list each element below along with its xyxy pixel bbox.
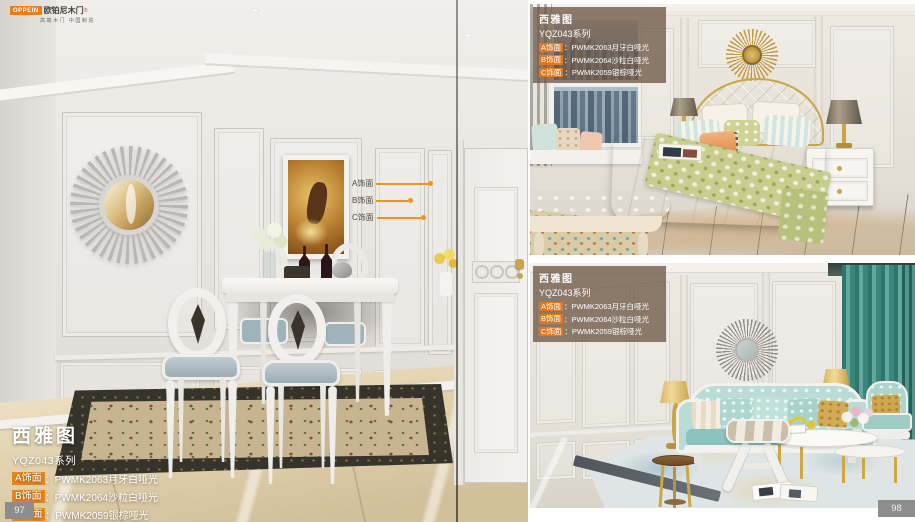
product-series: YQZ043系列 bbox=[539, 286, 660, 299]
callout-leader-line bbox=[376, 183, 428, 185]
chair-leg bbox=[220, 378, 226, 462]
vase bbox=[440, 272, 452, 296]
finish-line-b: B饰面：PWMK2064沙粒白哑光 bbox=[539, 314, 660, 325]
product-title: 西雅图 bbox=[539, 11, 660, 26]
gold-sunburst-decor bbox=[726, 29, 778, 81]
finish-tag-a: A饰面 bbox=[539, 302, 563, 312]
finish-value-b: PWMK2064沙粒白哑光 bbox=[55, 489, 158, 504]
finish-sep: ： bbox=[564, 55, 572, 66]
magazine-cover bbox=[759, 487, 774, 496]
product-title: 西雅图 bbox=[12, 421, 158, 448]
spotlight bbox=[463, 33, 473, 38]
drawer-knob bbox=[837, 189, 842, 194]
chair-leg bbox=[178, 378, 184, 462]
callout-b: B饰面 bbox=[352, 195, 413, 206]
callout-leader-line bbox=[376, 200, 408, 202]
callout-dot bbox=[408, 198, 413, 203]
living-room-info-overlay: 西雅图 YQZ043系列 A饰面：PWMK2063月牙白哑光 B饰面：PWMK2… bbox=[533, 266, 666, 342]
flower-bouquet bbox=[838, 403, 874, 431]
finish-line-a: A饰面：PWMK2063月牙白哑光 bbox=[539, 301, 660, 312]
spotlight bbox=[250, 8, 260, 13]
door-handle bbox=[515, 259, 524, 269]
nesting-table-top bbox=[834, 445, 906, 458]
bench-leg bbox=[534, 232, 544, 255]
door-keyhole bbox=[517, 273, 523, 279]
table-leg bbox=[800, 447, 803, 479]
finish-tag-c: C饰面 bbox=[539, 327, 563, 337]
partition-line bbox=[456, 0, 458, 522]
bench-leg bbox=[638, 232, 648, 255]
finish-sep: ： bbox=[45, 507, 55, 522]
door-circle-band bbox=[472, 261, 520, 283]
finish-tag-c: C饰面 bbox=[539, 68, 563, 78]
finish-sep: ： bbox=[564, 67, 572, 78]
chair-seat bbox=[262, 360, 340, 386]
table-lamp bbox=[824, 100, 864, 152]
kettle bbox=[332, 262, 352, 278]
mirror-face bbox=[735, 338, 759, 362]
finish-value-c: PWMK2059银棕哑光 bbox=[572, 67, 642, 78]
page-number-left: 97 bbox=[5, 502, 34, 519]
table-shelf bbox=[664, 499, 686, 505]
stool-stretcher bbox=[744, 463, 772, 469]
dining-chair bbox=[162, 288, 242, 488]
brand-logo: OPPEIN 欧铂尼木门 ® 高端木门 中国制造 bbox=[10, 5, 95, 24]
door-circle bbox=[490, 265, 504, 279]
pillow-striped bbox=[763, 114, 811, 147]
bed-tray bbox=[658, 143, 703, 161]
lamp-base bbox=[836, 143, 852, 148]
door-panel-bottom bbox=[474, 293, 518, 453]
dining-chair bbox=[262, 294, 342, 494]
finish-line-c: C饰面：PWMK2059银棕哑光 bbox=[539, 67, 660, 78]
registered-mark: ® bbox=[84, 8, 88, 14]
chair-seat bbox=[162, 354, 240, 380]
finish-sep: ： bbox=[45, 471, 55, 486]
finish-value-c: PWMK2059银棕哑光 bbox=[572, 326, 642, 337]
right-page: 西雅图 YQZ043系列 A饰面：PWMK2063月牙白哑光 B饰面：PWMK2… bbox=[530, 0, 915, 522]
brand-badge: OPPEIN bbox=[10, 6, 42, 15]
callout-c-label: C饰面 bbox=[352, 212, 374, 223]
mirror-reflection bbox=[126, 184, 136, 224]
callout-b-label: B饰面 bbox=[352, 195, 373, 206]
bench-cushion bbox=[530, 192, 670, 218]
brand-name: 欧铂尼木门 bbox=[44, 5, 84, 16]
finish-tag-b: B饰面 bbox=[539, 314, 563, 324]
runner-drape bbox=[777, 188, 828, 245]
finish-value-a: PWMK2063月牙白哑光 bbox=[572, 301, 650, 312]
catalog-spread: OPPEIN 欧铂尼木门 ® 高端木门 中国制造 A饰面 B饰面 C饰面 西雅图… bbox=[0, 0, 915, 522]
finish-value-a: PWMK2063月牙白哑光 bbox=[55, 471, 158, 486]
finish-line-c: C饰面：PWMK2059银棕哑光 bbox=[539, 326, 660, 337]
window-seat-pillow bbox=[531, 123, 559, 151]
lamp-shade bbox=[670, 98, 698, 116]
finish-value-b: PWMK2064沙粒白哑光 bbox=[572, 55, 650, 66]
sofa-pillow bbox=[691, 400, 723, 430]
finish-line-a: A饰面：PWMK2063月牙白哑光 bbox=[539, 42, 660, 53]
bedroom-info-overlay: 西雅图 YQZ043系列 A饰面：PWMK2063月牙白哑光 B饰面：PWMK2… bbox=[533, 7, 666, 83]
book bbox=[683, 149, 697, 158]
flower-vase bbox=[262, 252, 276, 280]
lamp-stem bbox=[842, 124, 846, 144]
finish-tag-a: A饰面 bbox=[12, 472, 45, 485]
callout-leader-line bbox=[377, 217, 421, 219]
lamp-shade bbox=[826, 100, 862, 124]
chair-leg bbox=[320, 384, 326, 468]
finish-line-a: A饰面：PWMK2063月牙白哑光 bbox=[12, 471, 158, 486]
left-page-dining-room-photo: OPPEIN 欧铂尼木门 ® 高端木门 中国制造 A饰面 B饰面 C饰面 西雅图… bbox=[0, 0, 528, 522]
magazines bbox=[752, 479, 818, 505]
product-title: 西雅图 bbox=[539, 270, 660, 285]
chair-leg bbox=[228, 380, 237, 478]
bedroom-photo: 西雅图 YQZ043系列 A饰面：PWMK2063月牙白哑光 B饰面：PWMK2… bbox=[530, 4, 915, 255]
chair-leg bbox=[266, 386, 275, 484]
magazine bbox=[779, 484, 818, 503]
finish-sep: ： bbox=[564, 314, 572, 325]
artwork-highlight bbox=[294, 218, 328, 246]
callout-dot bbox=[428, 181, 433, 186]
table-leg bbox=[686, 465, 692, 507]
drawer-knob bbox=[837, 166, 842, 171]
sofa-leg bbox=[694, 453, 702, 463]
brand-tagline: 高端木门 中国制造 bbox=[40, 17, 95, 24]
table-flowers bbox=[246, 220, 292, 256]
stool-cushion bbox=[726, 419, 790, 443]
page-number-right: 98 bbox=[878, 500, 915, 517]
finish-value-a: PWMK2063月牙白哑光 bbox=[572, 42, 650, 53]
finish-value-c: PWMK2059银棕哑光 bbox=[55, 507, 148, 522]
callout-a-label: A饰面 bbox=[352, 178, 373, 189]
finish-value-b: PWMK2064沙粒白哑光 bbox=[572, 314, 650, 325]
magazine-cover bbox=[789, 489, 802, 498]
door bbox=[464, 148, 528, 483]
chair-leg bbox=[166, 380, 175, 478]
decor-ball bbox=[807, 421, 815, 429]
bench-skirt bbox=[530, 216, 662, 232]
product-series: YQZ043系列 bbox=[539, 27, 660, 40]
finish-sep: ： bbox=[564, 301, 572, 312]
callout-c: C饰面 bbox=[352, 212, 426, 223]
nesting-table bbox=[834, 445, 906, 479]
finish-tag-a: A饰面 bbox=[539, 43, 563, 53]
finish-tag-b: B饰面 bbox=[539, 55, 563, 65]
door-circle bbox=[475, 265, 489, 279]
window-seat-pillow bbox=[556, 128, 580, 150]
framed-artwork bbox=[283, 155, 349, 259]
finish-line-b: B饰面：PWMK2064沙粒白哑光 bbox=[539, 55, 660, 66]
book bbox=[663, 147, 681, 157]
table-leg bbox=[842, 457, 845, 483]
living-room-photo: 西雅图 YQZ043系列 A饰面：PWMK2063月牙白哑光 B饰面：PWMK2… bbox=[530, 263, 915, 508]
chair-leg bbox=[328, 386, 337, 484]
finish-sep: ： bbox=[564, 326, 572, 337]
sunburst-mirror bbox=[70, 146, 188, 264]
sunburst-center bbox=[742, 45, 762, 65]
bed-bench bbox=[530, 192, 674, 255]
finish-sep: ： bbox=[564, 42, 572, 53]
callout-a: A饰面 bbox=[352, 178, 433, 189]
chair-leg bbox=[278, 384, 284, 468]
product-series: YQZ043系列 bbox=[12, 453, 158, 468]
callout-dot bbox=[421, 215, 426, 220]
sunburst-mirror bbox=[716, 319, 778, 381]
table-leg bbox=[894, 457, 897, 483]
finish-sep: ： bbox=[45, 489, 55, 504]
dining-table-top bbox=[222, 278, 398, 293]
